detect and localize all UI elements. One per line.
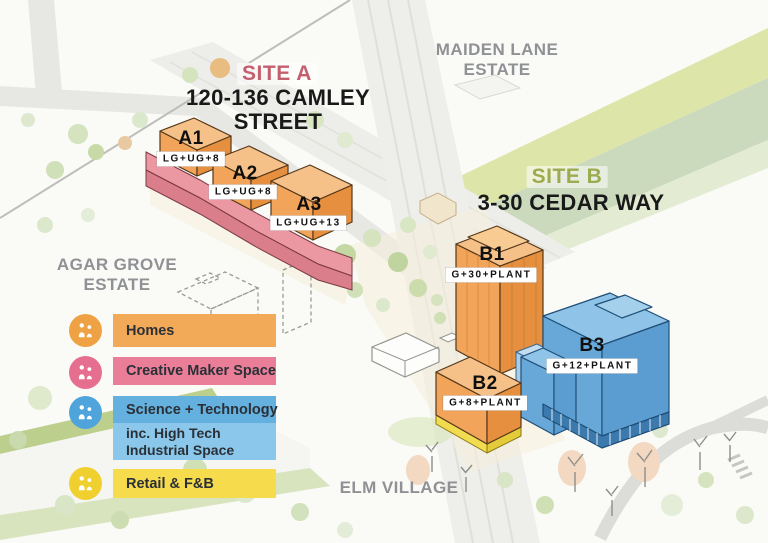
building-a2-floors-badge: LG+UG+8 [209, 185, 277, 200]
science-people-icon [75, 403, 97, 422]
legend-label-creative-maker-space: Creative Maker Space [113, 357, 276, 385]
building-a1-label: A1 [178, 128, 203, 150]
elm-village-label: ELM VILLAGE [340, 478, 459, 498]
legend-icon-science-technology [69, 396, 102, 429]
legend-sublabel-high-tech-industrial: inc. High Tech Industrial Space [113, 423, 276, 460]
legend-icon-retail-fb [69, 467, 102, 500]
building-a3-floors-badge: LG+UG+13 [270, 216, 346, 231]
legend-icon-creative-maker [69, 356, 102, 389]
legend-icon-homes [69, 314, 102, 347]
masterplan-canvas: SITE A 120-136 CAMLEY STREET MAIDEN LANE… [0, 0, 768, 543]
site-a-tag: SITE A [237, 63, 317, 85]
site-a-title: 120-136 CAMLEY STREET [186, 86, 370, 134]
site-b-title: 3-30 CEDAR WAY [478, 191, 665, 215]
building-b3-label: B3 [579, 335, 604, 357]
homes-people-icon [75, 321, 97, 340]
building-b3-floors-badge: G+12+PLANT [547, 359, 638, 374]
crosswalk [728, 455, 752, 478]
creative-maker-people-icon [75, 363, 97, 382]
building-a3-label: A3 [296, 194, 321, 216]
legend-label-retail-fb: Retail & F&B [113, 469, 276, 498]
building-b1-floors-badge: G+30+PLANT [446, 268, 537, 283]
building-a2-label: A2 [232, 163, 257, 185]
agar-grove-estate-label: AGAR GROVE ESTATE [57, 255, 177, 295]
legend-label-homes: Homes [113, 314, 276, 347]
site-a-title-line2: STREET [186, 110, 370, 134]
building-a1-floors-badge: LG+UG+8 [157, 152, 225, 167]
retail-people-icon [75, 474, 97, 493]
building-b2-label: B2 [472, 373, 497, 395]
maiden-lane-estate-label: MAIDEN LANE ESTATE [436, 40, 558, 80]
legend-label-science-technology: Science + Technology [113, 396, 276, 423]
building-b2-floors-badge: G+8+PLANT [443, 396, 527, 411]
building-b1-label: B1 [479, 244, 504, 266]
site-a-title-line1: 120-136 CAMLEY [186, 86, 370, 110]
site-b-tag: SITE B [527, 166, 608, 188]
